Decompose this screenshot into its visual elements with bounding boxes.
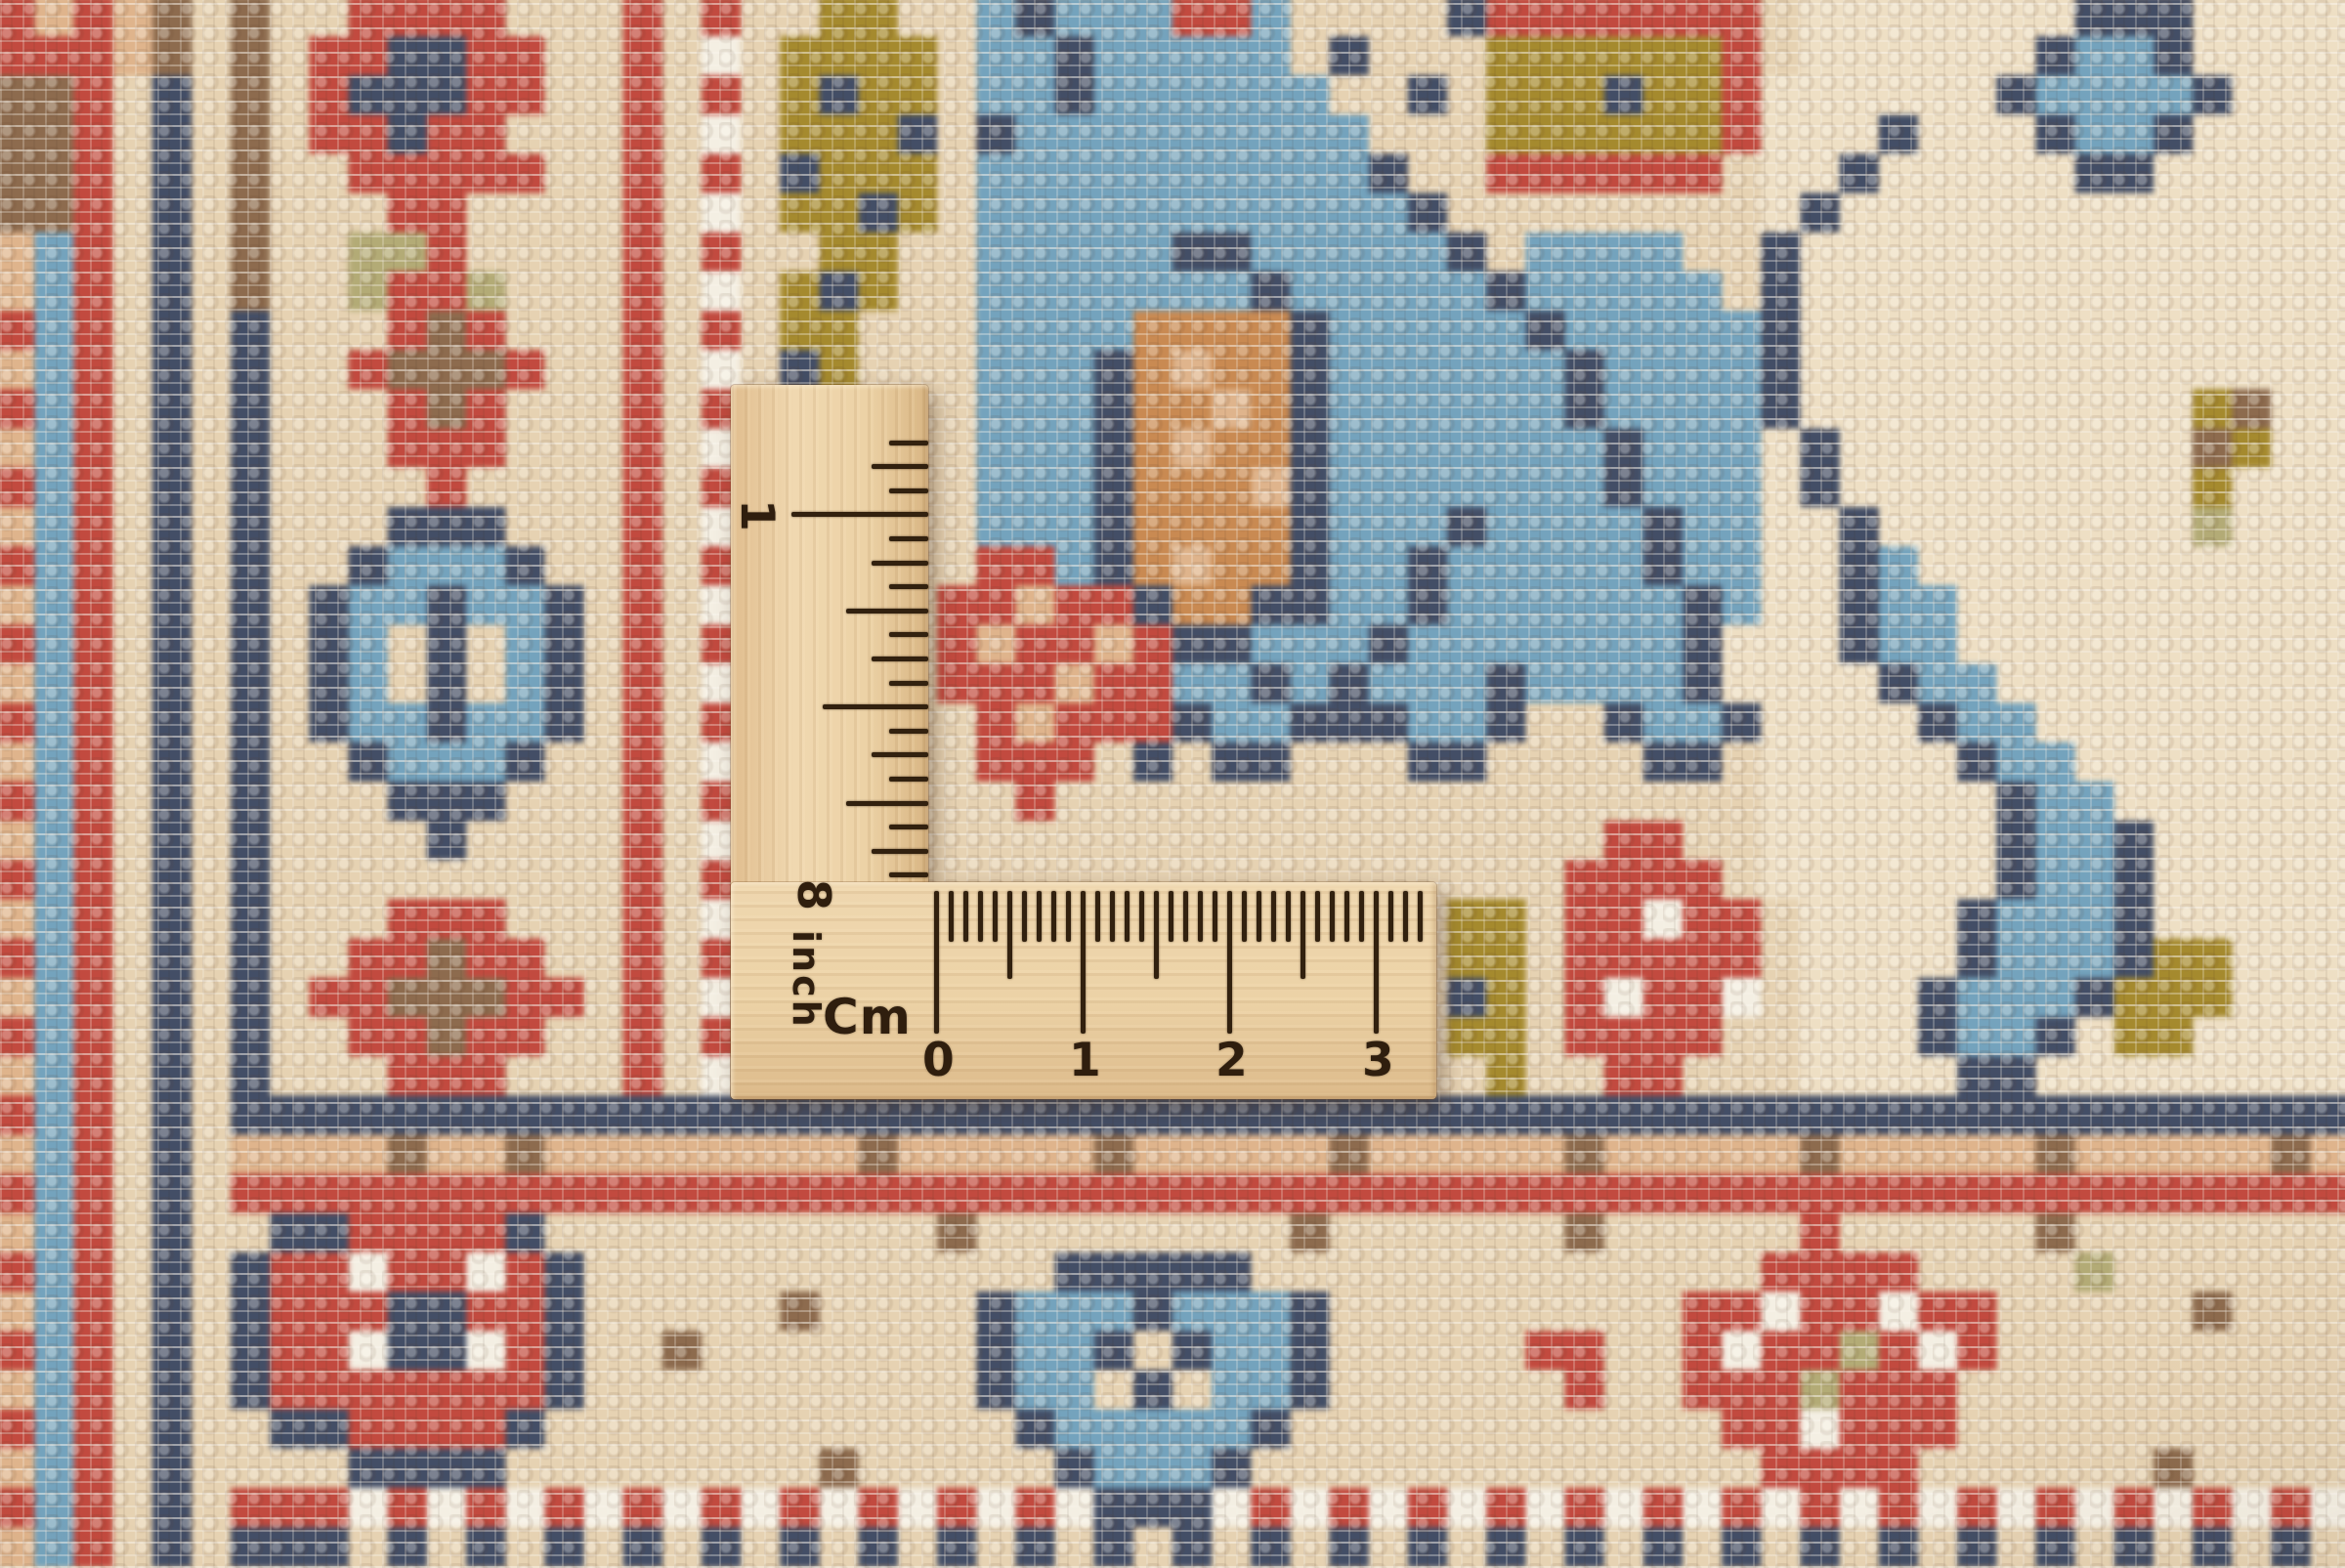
ruler-tick	[1359, 891, 1364, 942]
cm-tick-number: 0	[922, 1038, 955, 1083]
ruler-tick	[889, 729, 928, 734]
cm-tick-number: 2	[1215, 1038, 1248, 1083]
ruler-tick	[1139, 891, 1144, 942]
ruler-tick	[846, 801, 928, 806]
ruler-tick	[1081, 891, 1086, 1034]
ruler-tick	[872, 657, 928, 661]
ruler-tick	[1388, 891, 1393, 942]
carpet-mosaic	[0, 0, 2345, 1568]
ruler-tick	[889, 777, 928, 782]
ruler-tick	[1300, 891, 1305, 979]
ruler-tick	[1330, 891, 1335, 942]
ruler-tick	[1154, 891, 1159, 979]
ruler-tick	[872, 752, 928, 757]
ruler-tick	[889, 825, 928, 829]
ruler-tick	[872, 561, 928, 566]
ruler-tick	[1242, 891, 1247, 942]
ruler-tick	[1125, 891, 1130, 942]
ruler-tick	[1007, 891, 1012, 979]
ruler-tick	[889, 872, 928, 877]
inch-unit-label: inch	[788, 930, 825, 1030]
ruler-tick	[1257, 891, 1261, 942]
inch-scale-number: 8	[791, 879, 836, 911]
ruler-tick	[846, 609, 928, 614]
ruler-tick	[889, 488, 928, 493]
ruler-tick	[889, 681, 928, 686]
ruler-tick	[1051, 891, 1056, 942]
ruler-tick	[791, 512, 928, 517]
ruler-tick	[1213, 891, 1217, 942]
cm-tick-number: 1	[1069, 1038, 1101, 1083]
ruler-tick	[1403, 891, 1408, 942]
ruler-tick	[1374, 891, 1379, 1034]
ruler-tick	[872, 849, 928, 854]
ruler-tick	[1286, 891, 1291, 942]
ruler-tick	[1110, 891, 1115, 942]
ruler-tick	[1344, 891, 1349, 942]
cm-tick-number: 3	[1362, 1038, 1394, 1083]
ruler-tick	[1095, 891, 1100, 942]
ruler-tick	[1227, 891, 1232, 1034]
ruler-tick	[872, 464, 928, 469]
ruler-tick	[993, 891, 998, 942]
ruler-tick	[889, 536, 928, 541]
ruler-tick	[949, 891, 954, 942]
ruler-tick	[889, 441, 928, 445]
ruler-tick	[1066, 891, 1071, 942]
ruler-tick	[978, 891, 983, 942]
cm-unit-label: Cm	[823, 993, 912, 1041]
ruler-tick	[1198, 891, 1203, 942]
rug-photo: 8 inch Cm 10123	[0, 0, 2345, 1568]
inch-tick-number: 1	[734, 500, 780, 532]
ruler-tick	[1037, 891, 1042, 942]
ruler-tick	[889, 584, 928, 589]
ruler-tick	[1022, 891, 1027, 942]
ruler-tick	[1315, 891, 1320, 942]
ruler-tick	[934, 891, 939, 1034]
ruler-tick	[823, 704, 928, 709]
ruler-tick	[963, 891, 968, 942]
ruler-tick	[889, 632, 928, 637]
ruler-tick	[1271, 891, 1276, 942]
ruler-tick	[1418, 891, 1423, 942]
ruler-tick	[1169, 891, 1173, 942]
ruler-tick	[1183, 891, 1188, 942]
